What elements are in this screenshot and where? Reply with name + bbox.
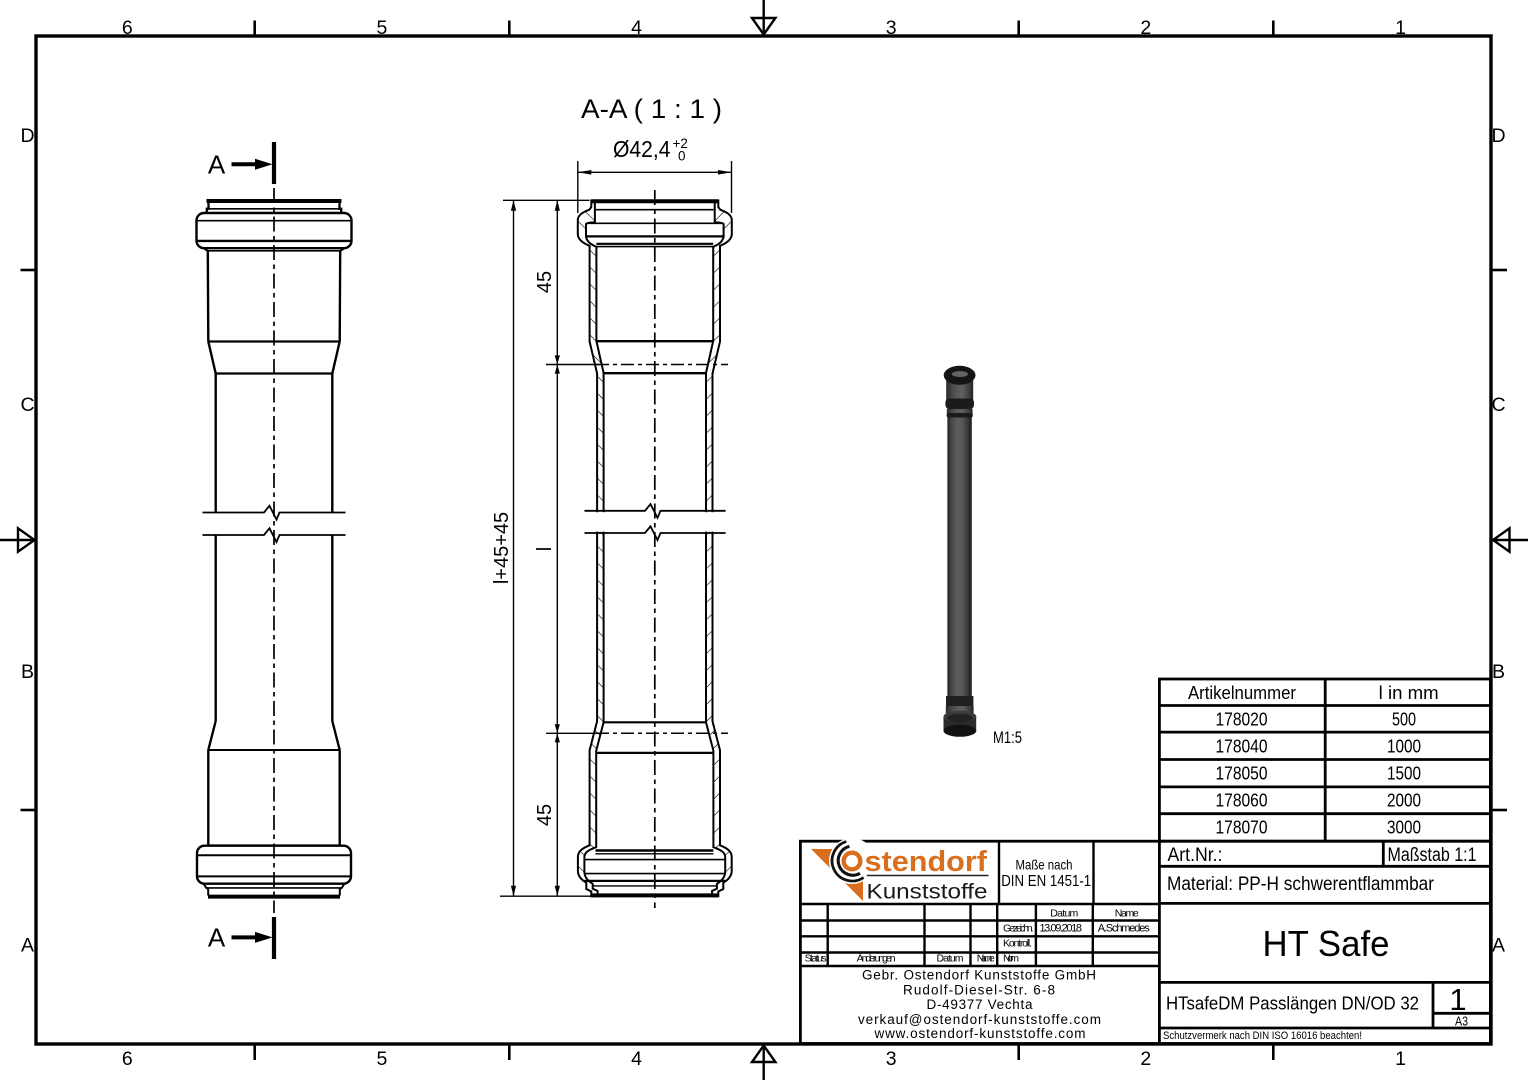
svg-text:6: 6: [122, 1048, 133, 1070]
svg-text:stendorf: stendorf: [865, 846, 988, 878]
svg-text:Gezeichn.: Gezeichn.: [1003, 922, 1034, 934]
svg-text:B: B: [1492, 661, 1505, 683]
svg-text:178020: 178020: [1216, 709, 1268, 730]
svg-text:A.Schmedes: A.Schmedes: [1098, 922, 1151, 934]
svg-text:D-49377 Vechta: D-49377 Vechta: [927, 997, 1033, 1012]
svg-text:45: 45: [534, 271, 556, 293]
svg-text:C: C: [1491, 394, 1505, 416]
svg-text:3: 3: [886, 17, 897, 39]
svg-text:2: 2: [1140, 17, 1151, 39]
svg-text:1000: 1000: [1387, 736, 1421, 757]
svg-text:1: 1: [1449, 982, 1466, 1017]
svg-text:D: D: [20, 125, 34, 147]
svg-text:Datum: Datum: [937, 952, 964, 964]
svg-text:1: 1: [1395, 1048, 1406, 1070]
svg-text:l+45+45: l+45+45: [491, 512, 513, 584]
svg-text:A: A: [1492, 935, 1505, 957]
svg-text:Schutzvermerk nach DIN ISO 160: Schutzvermerk nach DIN ISO 16016 beachte…: [1163, 1030, 1362, 1042]
svg-text:1500: 1500: [1387, 763, 1421, 784]
svg-text:Art.Nr.:: Art.Nr.:: [1168, 845, 1223, 866]
svg-text:Gebr. Ostendorf Kunststoffe Gm: Gebr. Ostendorf Kunststoffe GmbH: [862, 968, 1096, 983]
svg-text:Kontroll.: Kontroll.: [1003, 937, 1032, 949]
svg-text:A: A: [208, 150, 226, 180]
svg-text:2: 2: [1140, 1048, 1151, 1070]
svg-text:Maßstab 1:1: Maßstab 1:1: [1388, 845, 1477, 866]
svg-text:Datum: Datum: [1050, 908, 1078, 920]
svg-text:Name: Name: [977, 952, 995, 964]
svg-text:Ø42,4: Ø42,4: [613, 136, 671, 162]
svg-text:C: C: [20, 394, 34, 416]
svg-text:3000: 3000: [1387, 817, 1421, 838]
svg-text:6: 6: [122, 17, 133, 39]
svg-text:178050: 178050: [1216, 763, 1268, 784]
svg-text:Name: Name: [1115, 908, 1139, 920]
svg-text:4: 4: [631, 17, 642, 39]
svg-text:45: 45: [534, 804, 556, 826]
svg-text:Artikelnummer: Artikelnummer: [1188, 682, 1296, 703]
svg-text:l in mm: l in mm: [1379, 682, 1439, 703]
svg-text:Norm: Norm: [1003, 952, 1019, 964]
svg-text:verkauf@ostendorf-kunststoffe.: verkauf@ostendorf-kunststoffe.com: [858, 1012, 1101, 1027]
svg-text:5: 5: [376, 17, 387, 39]
svg-text:Kunststoffe: Kunststoffe: [867, 880, 988, 904]
svg-text:A: A: [208, 923, 226, 953]
svg-text:2000: 2000: [1387, 790, 1421, 811]
svg-text:A3: A3: [1455, 1015, 1468, 1029]
svg-text:1: 1: [1395, 17, 1406, 39]
svg-text:B: B: [21, 661, 34, 683]
svg-text:178060: 178060: [1216, 790, 1268, 811]
svg-text:Status: Status: [805, 952, 827, 964]
svg-text:A-A ( 1 : 1 ): A-A ( 1 : 1 ): [581, 94, 722, 124]
svg-text:Rudolf-Diesel-Str. 6-8: Rudolf-Diesel-Str. 6-8: [903, 982, 1055, 997]
svg-text:5: 5: [376, 1048, 387, 1070]
svg-text:13.09.2018: 13.09.2018: [1039, 922, 1082, 934]
svg-text:HT Safe: HT Safe: [1263, 923, 1390, 964]
svg-text:0: 0: [678, 149, 686, 164]
svg-text:DIN EN 1451-1: DIN EN 1451-1: [1001, 873, 1091, 890]
svg-text:l: l: [534, 547, 556, 551]
svg-text:www.ostendorf-kunststoffe.com: www.ostendorf-kunststoffe.com: [874, 1026, 1086, 1041]
svg-text:3: 3: [886, 1048, 897, 1070]
svg-text:178070: 178070: [1216, 817, 1268, 838]
svg-text:HTsafeDM Passlängen DN/OD 32: HTsafeDM Passlängen DN/OD 32: [1166, 993, 1419, 1014]
svg-text:Maße nach: Maße nach: [1016, 857, 1073, 873]
svg-text:500: 500: [1392, 709, 1416, 730]
svg-text:4: 4: [631, 1048, 642, 1070]
svg-text:D: D: [1491, 125, 1505, 147]
svg-text:Änderungen: Änderungen: [857, 952, 896, 964]
svg-text:178040: 178040: [1216, 736, 1268, 757]
svg-text:Material: PP-H schwerentflammb: Material: PP-H schwerentflammbar: [1167, 874, 1435, 895]
svg-text:A: A: [21, 935, 34, 957]
svg-text:M1:5: M1:5: [993, 728, 1022, 747]
